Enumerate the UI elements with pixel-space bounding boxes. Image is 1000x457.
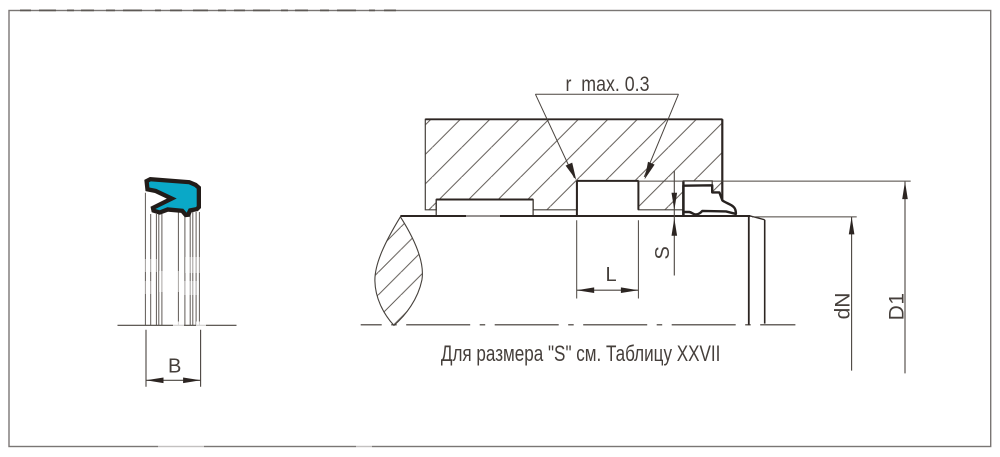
svg-text:D1: D1 [885, 292, 908, 320]
svg-text:S: S [652, 246, 674, 259]
svg-text:L: L [606, 264, 617, 286]
svg-text:dN: dN [832, 293, 855, 320]
svg-text:Для размера "S" см. Таблицу XX: Для размера "S" см. Таблицу XXVII [441, 341, 721, 366]
svg-text:r max. 0.3: r max. 0.3 [566, 73, 650, 96]
svg-text:B: B [168, 356, 181, 378]
